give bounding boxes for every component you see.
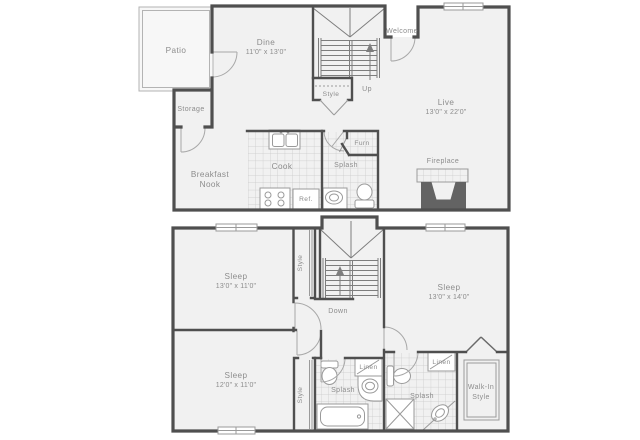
fridge-label: Ref. (299, 196, 313, 203)
floorplan-canvas: Patio Storage Dine 11'0" x 13'0" Welcome… (0, 0, 640, 440)
linen-label-east: Linen (432, 359, 450, 366)
bath-label-splash-east: Splash (410, 393, 434, 400)
burner (278, 200, 284, 206)
room-label-breakfast: Breakfast (191, 170, 230, 179)
room-label-nook: Nook (200, 180, 221, 189)
toilet-tank (321, 361, 338, 368)
room-dims-sleep-sw: 12'0" x 11'0" (216, 382, 257, 389)
floorplan-image: Patio Storage Dine 11'0" x 13'0" Welcome… (0, 0, 640, 440)
sink-bowl-inner (366, 382, 375, 390)
fireplace-hearth-tiles (417, 169, 468, 182)
bathtub-drain (357, 415, 360, 418)
walkin-label-line1: Walk-In (468, 384, 494, 391)
sink-basin-right (286, 134, 298, 147)
closet-label-style-south: Style (297, 387, 304, 404)
room-label-sleep-nw: Sleep (225, 272, 248, 281)
walkin-label-line2: Style (472, 394, 490, 401)
entry-label-welcome: Welcome (386, 28, 418, 35)
room-label-sleep-e: Sleep (438, 283, 461, 292)
room-label-storage: Storage (177, 106, 204, 113)
room-label-live: Live (438, 98, 455, 107)
room-dims-sleep-e: 13'0" x 14'0" (429, 294, 470, 301)
fireplace-label: Fireplace (427, 158, 459, 165)
room-label-patio: Patio (166, 46, 187, 55)
room-dims-sleep-nw: 13'0" x 11'0" (216, 283, 257, 290)
toilet-bowl (357, 184, 372, 200)
stairs-label-down: Down (328, 308, 348, 315)
faucet-dot (434, 418, 436, 420)
furnace-label: Furn (354, 140, 369, 147)
sink-basin-left (273, 134, 285, 147)
stairs-label-up: Up (362, 86, 372, 93)
upper-floor: Patio Storage Dine 11'0" x 13'0" Welcome… (139, 3, 509, 210)
bath-label-splash-west: Splash (331, 387, 355, 394)
room-dims-dine: 11'0" x 13'0" (246, 49, 287, 56)
room-label-sleep-sw: Sleep (225, 371, 248, 380)
closet-label-style-north: Style (297, 255, 304, 272)
stove (260, 188, 290, 209)
closet-label-style-upper: Style (323, 91, 340, 98)
lower-floor: Sleep 13'0" x 11'0" Sleep 13'0" x 14'0" … (173, 217, 508, 434)
sink-bowl-inner (330, 194, 339, 201)
burner (278, 192, 284, 198)
toilet-tank (387, 366, 394, 386)
bath-label-splash-upper: Splash (334, 162, 358, 169)
toilet-tank (355, 200, 374, 208)
windows-upper (444, 3, 483, 10)
burner (265, 200, 271, 206)
room-dims-live: 13'0" x 22'0" (426, 109, 467, 116)
room-label-dine: Dine (257, 38, 275, 47)
room-label-cook: Cook (272, 162, 293, 171)
linen-label-west: Linen (359, 364, 377, 371)
burner (265, 192, 271, 198)
